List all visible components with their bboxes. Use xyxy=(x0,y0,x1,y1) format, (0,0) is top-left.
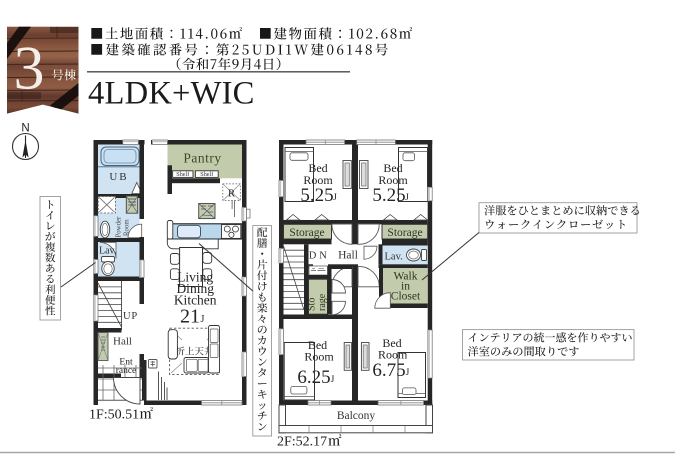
svg-text:Hall: Hall xyxy=(113,336,132,348)
svg-text:rage: rage xyxy=(317,293,328,311)
svg-text:2F:52.17: 2F:52.17 xyxy=(277,435,327,450)
svg-text:Storage: Storage xyxy=(387,227,422,239)
svg-text:R: R xyxy=(228,189,235,200)
svg-text:J: J xyxy=(201,314,205,325)
svg-text:UB: UB xyxy=(109,171,128,183)
svg-text:Sto: Sto xyxy=(307,298,318,311)
svg-text:Room: Room xyxy=(304,350,334,364)
svg-text:N: N xyxy=(319,251,327,262)
svg-text:6.75: 6.75 xyxy=(372,360,405,381)
svg-text:6.25: 6.25 xyxy=(297,367,330,388)
svg-text:J: J xyxy=(406,368,410,378)
svg-text:5.25: 5.25 xyxy=(372,185,405,206)
svg-text:21: 21 xyxy=(180,306,200,328)
svg-text:J: J xyxy=(331,375,335,385)
svg-text:J: J xyxy=(405,193,409,203)
svg-text:4LDK+WIC: 4LDK+WIC xyxy=(88,76,255,112)
svg-text:Hall: Hall xyxy=(338,250,358,262)
svg-text:Closet: Closet xyxy=(391,291,421,303)
svg-text:5.25: 5.25 xyxy=(300,185,333,206)
svg-text:UP: UP xyxy=(123,311,138,322)
svg-text:Storage: Storage xyxy=(289,227,324,239)
svg-text:1F:50.51: 1F:50.51 xyxy=(89,408,139,423)
svg-text:Lav.: Lav. xyxy=(99,246,116,257)
svg-text:J: J xyxy=(333,193,337,203)
svg-text:Shelf: Shelf xyxy=(176,171,190,178)
svg-text:N: N xyxy=(21,123,29,135)
svg-text:Powder: Powder xyxy=(116,216,123,238)
svg-text:D: D xyxy=(309,251,317,262)
svg-text:Pantry: Pantry xyxy=(183,151,221,166)
svg-text:Lav.: Lav. xyxy=(385,252,403,263)
svg-text:Shelf: Shelf xyxy=(200,171,214,178)
svg-text:Balcony: Balcony xyxy=(337,410,376,422)
